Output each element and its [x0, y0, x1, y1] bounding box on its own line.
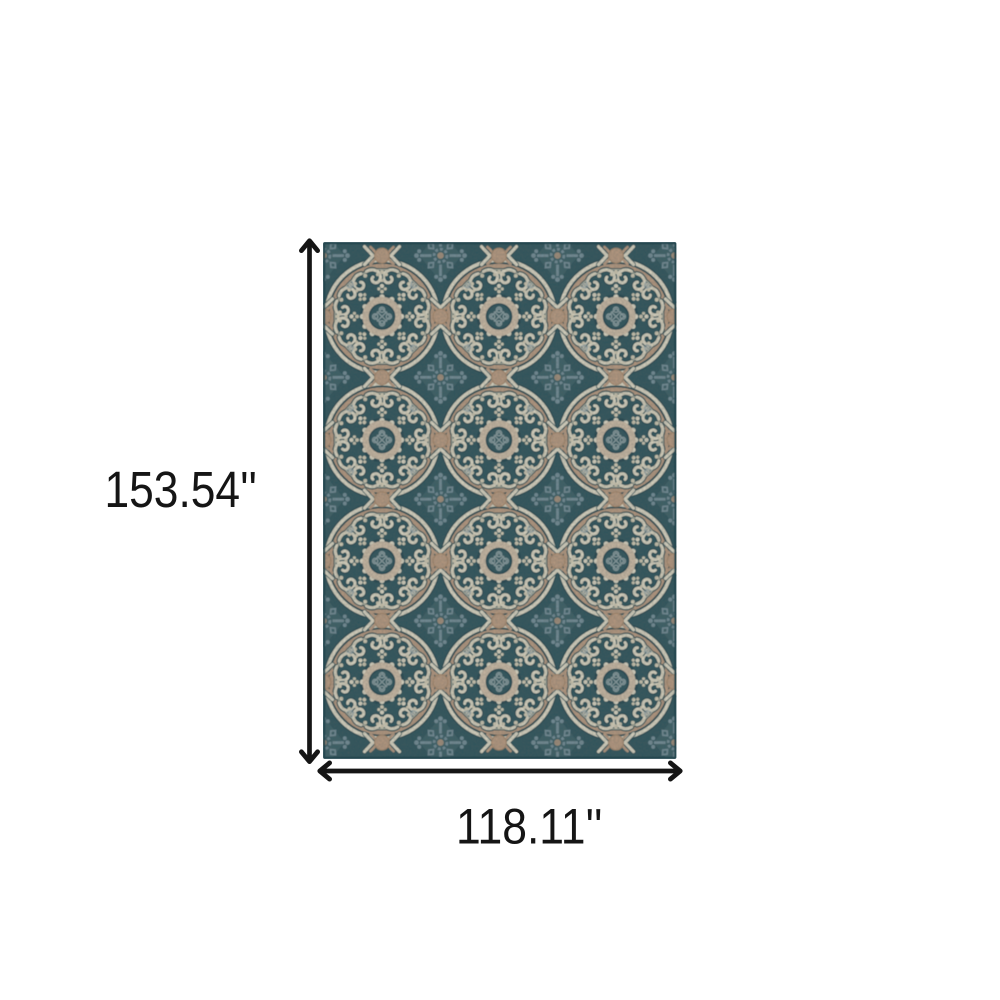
- svg-text:118.11'': 118.11'': [456, 798, 603, 854]
- svg-text:153.54'': 153.54'': [105, 461, 258, 518]
